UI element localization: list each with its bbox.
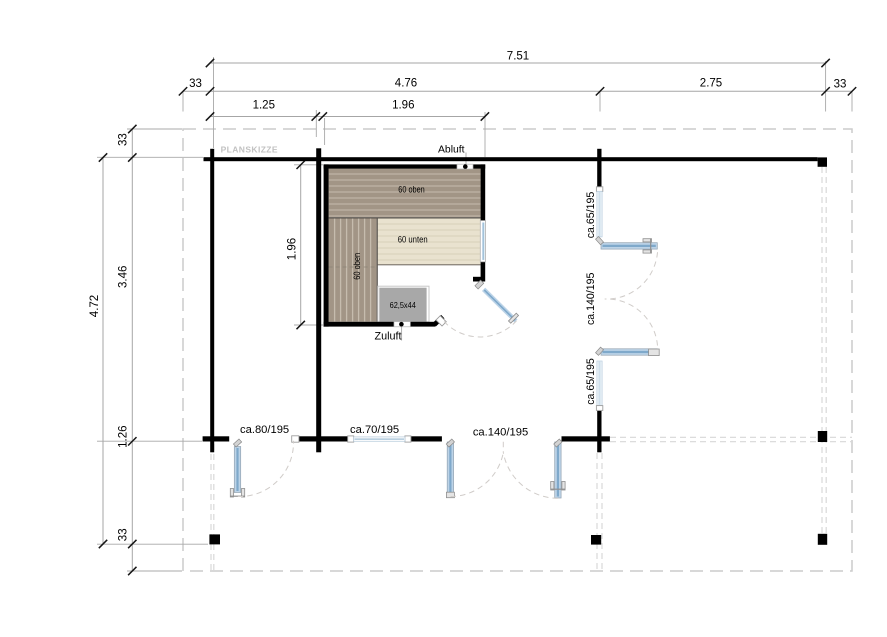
svg-text:4.72: 4.72	[89, 295, 101, 317]
svg-text:60 unten: 60 unten	[398, 235, 428, 245]
svg-text:1.25: 1.25	[253, 100, 275, 112]
svg-text:ca.80/195: ca.80/195	[240, 424, 289, 436]
svg-text:33: 33	[834, 79, 847, 91]
svg-text:PLANSKIZZE: PLANSKIZZE	[221, 145, 278, 155]
svg-text:33: 33	[118, 133, 130, 146]
svg-text:62,5x44: 62,5x44	[390, 301, 417, 310]
svg-text:2.75: 2.75	[700, 78, 722, 90]
svg-text:7.51: 7.51	[507, 51, 529, 63]
svg-text:33: 33	[189, 78, 202, 90]
svg-text:1.96: 1.96	[287, 238, 299, 260]
svg-text:Zuluft: Zuluft	[374, 331, 401, 343]
svg-text:ca.65/195: ca.65/195	[585, 192, 597, 239]
svg-text:ca.140/195: ca.140/195	[473, 426, 528, 438]
svg-text:3.46: 3.46	[118, 266, 130, 288]
svg-text:1.26: 1.26	[118, 426, 130, 448]
svg-text:60 oben: 60 oben	[352, 253, 362, 280]
svg-text:ca.70/195: ca.70/195	[350, 424, 399, 436]
svg-text:1.96: 1.96	[392, 100, 414, 112]
svg-text:ca.140/195: ca.140/195	[585, 272, 597, 325]
svg-text:4.76: 4.76	[395, 78, 417, 90]
svg-text:ca.65/195: ca.65/195	[585, 358, 597, 405]
svg-text:Abluft: Abluft	[438, 144, 465, 155]
svg-text:60 oben: 60 oben	[398, 185, 425, 195]
svg-text:33: 33	[118, 528, 130, 541]
